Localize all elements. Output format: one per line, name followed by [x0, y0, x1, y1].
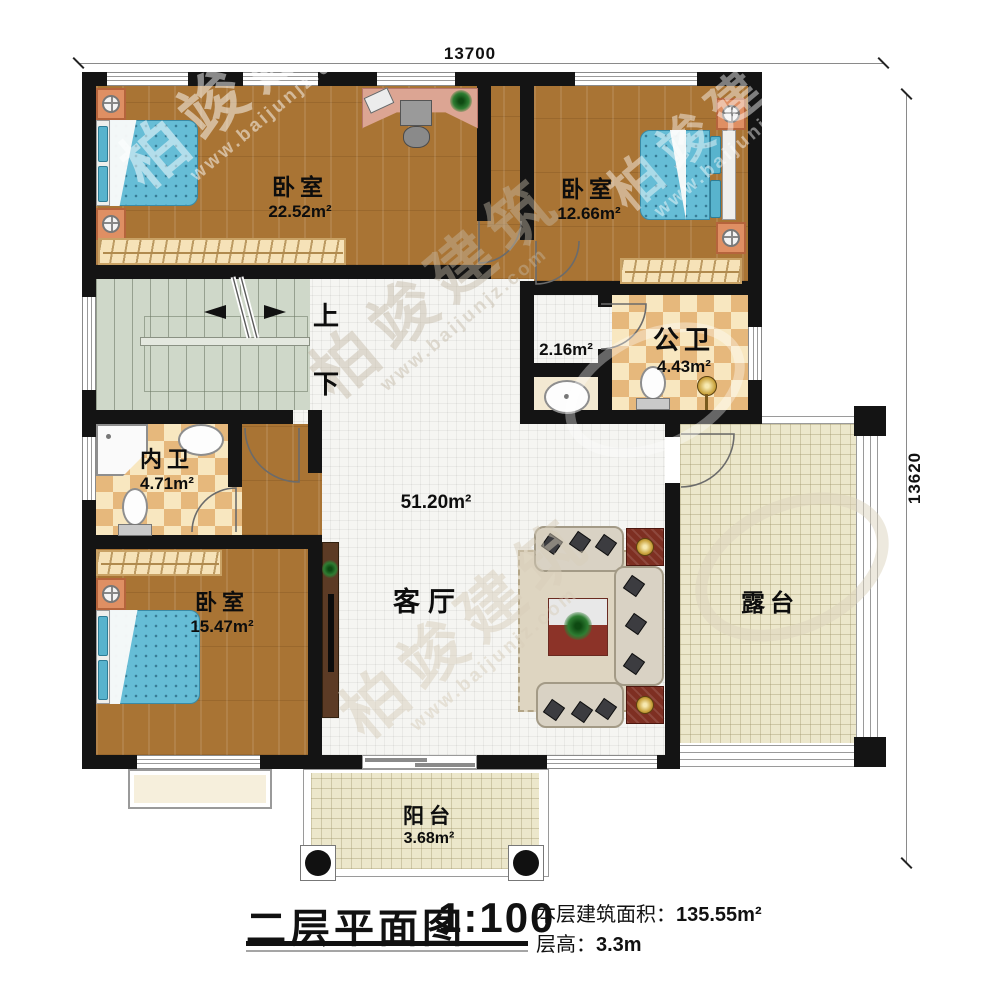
- room-area: 2.16m²: [539, 340, 593, 360]
- floor-height-label: 层高：: [536, 934, 596, 956]
- dimension-right-value: 13620: [905, 452, 925, 504]
- floor-area-label: 本层建筑面积：: [536, 904, 676, 926]
- sofa-pillow: [569, 531, 591, 553]
- sofa-pillow: [541, 533, 563, 555]
- monitor-icon: [400, 100, 432, 126]
- toilet-tank: [118, 524, 152, 536]
- nightstand: [716, 98, 746, 130]
- lamp-icon: [102, 215, 120, 233]
- plant-icon: [322, 560, 338, 578]
- shower-drain-dot: [106, 434, 111, 439]
- room-area: 3.68m²: [403, 830, 455, 848]
- room-label-living-area: 51.20m²: [401, 492, 472, 514]
- room-name: 卧室: [557, 170, 620, 204]
- balcony-column: [305, 850, 331, 876]
- wall-segment: [534, 363, 600, 377]
- wardrobe-rail: [101, 563, 219, 565]
- lamp-icon: [636, 696, 654, 714]
- shower-head-icon: [697, 376, 717, 396]
- pillow: [98, 660, 108, 700]
- wardrobe: [98, 238, 346, 265]
- wall-segment: [665, 410, 680, 437]
- window: [575, 72, 697, 86]
- wall-segment: [598, 295, 612, 307]
- room-label-bedroom1: 卧室 22.52m²: [268, 168, 331, 222]
- window: [377, 72, 455, 86]
- stair-handrail: [140, 337, 310, 346]
- room-name: 阳台: [403, 800, 455, 830]
- sofa-pillow: [623, 653, 645, 675]
- terrace-railing-right: [856, 410, 880, 767]
- pillow: [710, 136, 721, 174]
- room-label-living: 客厅: [393, 580, 463, 619]
- wall-segment: [665, 483, 680, 769]
- window: [547, 755, 657, 769]
- title-underline-thick: [246, 941, 528, 946]
- floor-plan: 柏竣建筑 www.baijunjz.com 柏竣建筑 www.baijunjz.…: [0, 0, 1000, 990]
- room-label-wash: 2.16m²: [539, 340, 593, 360]
- window: [82, 437, 96, 500]
- wall-segment: [520, 281, 534, 424]
- plant-icon: [450, 90, 472, 112]
- wall-segment: [308, 535, 322, 769]
- title-underline-thin: [246, 950, 528, 952]
- wall-segment: [477, 86, 491, 221]
- floor-area-line: 本层建筑面积：135.55m²: [536, 898, 762, 927]
- wall-segment: [82, 535, 322, 549]
- sofa: [534, 526, 624, 572]
- terrace-railing-top: [762, 410, 856, 424]
- room-area: 4.43m²: [653, 357, 715, 377]
- toilet-tank: [636, 398, 670, 410]
- sofa-pillow: [625, 613, 647, 635]
- wall-segment: [96, 265, 491, 279]
- sliding-door-leaf: [365, 758, 427, 762]
- nightstand: [96, 208, 126, 240]
- desk-chair: [403, 126, 430, 148]
- window: [137, 755, 260, 769]
- wall-segment: [82, 410, 293, 424]
- window: [243, 72, 318, 86]
- wall-segment: [228, 424, 242, 487]
- wall-segment: [308, 410, 322, 473]
- terrace-column: [854, 737, 886, 767]
- stair-inner-outline: [144, 316, 308, 392]
- pillow: [710, 180, 721, 218]
- side-table: [626, 528, 664, 566]
- room-name: 露台: [741, 583, 799, 618]
- sofa-pillow: [595, 698, 617, 720]
- bay-window: [128, 769, 272, 809]
- room-name: 卧室: [190, 585, 253, 617]
- room-area: 15.47m²: [190, 617, 253, 637]
- room-label-public-bath: 公卫 4.43m²: [653, 320, 715, 377]
- room-area: 51.20m²: [401, 492, 472, 514]
- wardrobe-rail: [625, 271, 739, 273]
- lamp-icon: [636, 538, 654, 556]
- floor-height-value: 3.3m: [596, 934, 642, 956]
- window: [748, 327, 762, 380]
- tv-icon: [328, 594, 334, 672]
- wardrobe: [96, 550, 222, 576]
- floor-area-value: 135.55m²: [676, 904, 762, 926]
- stair-down-label: 下: [313, 364, 339, 401]
- sofa-pillow: [543, 699, 565, 721]
- dimension-top-value: 13700: [444, 44, 496, 64]
- room-label-balcony: 阳台 3.68m²: [403, 800, 455, 848]
- pillow: [98, 166, 108, 202]
- sofa-pillow: [595, 534, 617, 556]
- room-label-terrace: 露台: [741, 583, 799, 618]
- faucet-dot: [564, 394, 569, 399]
- lamp-icon: [102, 585, 120, 603]
- room-label-private-bath: 内卫 4.71m²: [140, 442, 194, 494]
- room-name: 公卫: [653, 320, 715, 357]
- nightstand: [96, 578, 126, 610]
- wall-segment: [520, 86, 534, 240]
- room-area: 4.71m²: [140, 474, 194, 494]
- side-table: [626, 686, 664, 724]
- sofa: [614, 566, 664, 686]
- balcony-column-base: [300, 845, 336, 881]
- stair-up-text: 上: [313, 301, 339, 331]
- floor-height-line: 层高：3.3m: [536, 928, 642, 957]
- stair-up-label: 上: [313, 296, 339, 333]
- window: [107, 72, 188, 86]
- plant-icon: [564, 612, 592, 640]
- room-name: 卧室: [268, 168, 331, 202]
- sliding-door: [362, 755, 477, 769]
- window: [82, 297, 96, 390]
- pillow: [98, 616, 108, 656]
- room-name: 客厅: [393, 580, 463, 619]
- sofa: [536, 682, 624, 728]
- pillow: [98, 126, 108, 162]
- lamp-icon: [102, 95, 120, 113]
- wardrobe: [620, 258, 742, 284]
- nightstand: [96, 88, 126, 120]
- sliding-door-leaf: [415, 763, 475, 767]
- room-name: 内卫: [140, 442, 194, 474]
- lamp-icon: [722, 229, 740, 247]
- nightstand: [716, 222, 746, 254]
- shower-stem: [705, 394, 708, 410]
- sofa-pillow: [623, 575, 645, 597]
- terrace-column: [854, 406, 886, 436]
- stair-down-text: 下: [313, 369, 339, 399]
- balcony-column-base: [508, 845, 544, 881]
- room-area: 22.52m²: [268, 202, 331, 222]
- terrace-railing-bottom: [680, 743, 856, 767]
- lamp-icon: [722, 105, 740, 123]
- wardrobe-rail: [103, 252, 343, 254]
- bed-headboard: [722, 130, 736, 220]
- room-area: 12.66m²: [557, 204, 620, 224]
- room-label-bedroom2: 卧室 12.66m²: [557, 170, 620, 224]
- room-label-bedroom3: 卧室 15.47m²: [190, 585, 253, 637]
- balcony-column: [513, 850, 539, 876]
- sofa-pillow: [571, 701, 593, 723]
